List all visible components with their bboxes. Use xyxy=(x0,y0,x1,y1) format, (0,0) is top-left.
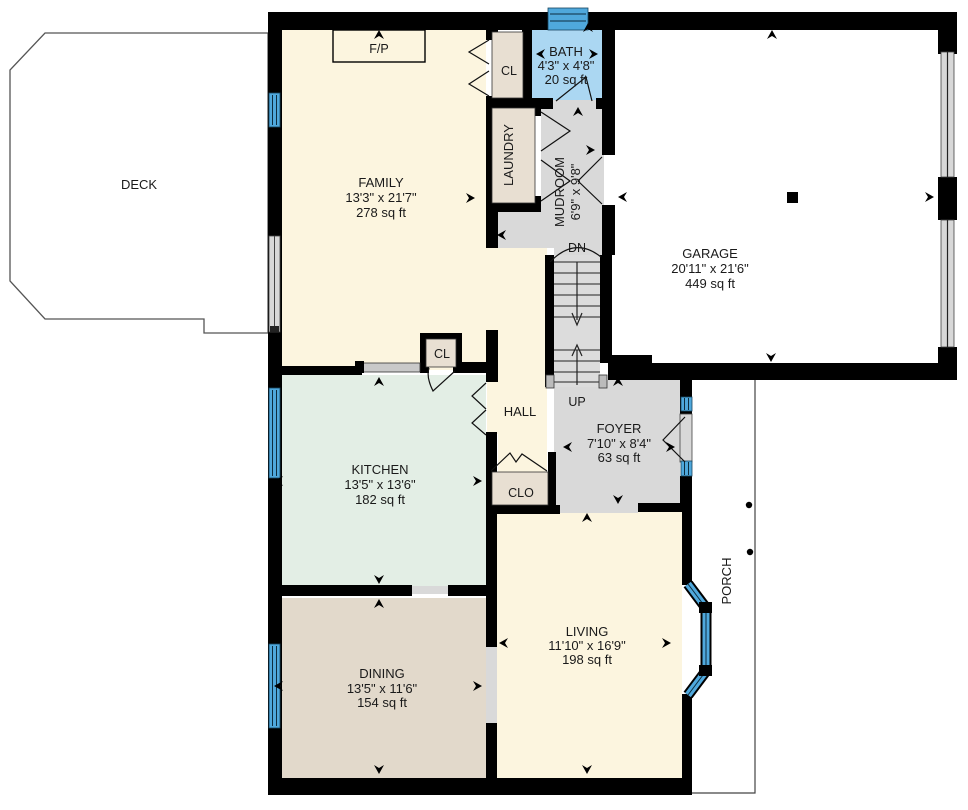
family-hall-opening xyxy=(486,248,498,330)
kitchen-window xyxy=(269,388,280,478)
floor-plan-svg: DECK F/P FAMILY 13'3" x 21'7" 278 sq ft … xyxy=(0,0,968,810)
stairs-up-label: UP xyxy=(568,395,585,409)
foyer-area: 63 sq ft xyxy=(598,450,641,465)
room-floors xyxy=(282,30,682,778)
family-sliding-door xyxy=(269,236,280,332)
bay-window xyxy=(682,576,712,703)
kitchen-hall-doorfloor xyxy=(487,382,498,434)
bath-label: BATH xyxy=(549,44,583,59)
dining-label: DINING xyxy=(359,666,405,681)
porch-label: PORCH xyxy=(719,558,734,605)
mudroom-label: MUDROOM xyxy=(552,157,567,227)
garage-post xyxy=(787,192,798,203)
porch-post xyxy=(746,502,752,508)
hall-closet-label: CLO xyxy=(508,486,534,500)
floor-plan: DECK F/P FAMILY 13'3" x 21'7" 278 sq ft … xyxy=(0,0,968,810)
garage-door-upper xyxy=(941,52,954,177)
bath-area: 20 sq ft xyxy=(545,72,588,87)
living-label: LIVING xyxy=(566,624,609,639)
family-dims: 13'3" x 21'7" xyxy=(345,190,417,205)
kitchen-closet-label: CL xyxy=(434,347,450,361)
kitchen-label: KITCHEN xyxy=(351,462,408,477)
family-label: FAMILY xyxy=(358,175,404,190)
foyer-label: FOYER xyxy=(597,421,642,436)
mudroom-dims: 6'9" x 9'8" xyxy=(568,163,583,220)
hall-label: HALL xyxy=(504,404,537,419)
fireplace-label: F/P xyxy=(369,42,388,56)
kitchen-area: 182 sq ft xyxy=(355,492,405,507)
kitchen-dims: 13'5" x 13'6" xyxy=(344,477,416,492)
staircase xyxy=(546,255,607,388)
foyer-dims: 7'10" x 8'4" xyxy=(587,436,651,451)
front-door-windows xyxy=(680,397,692,476)
family-area: 278 sq ft xyxy=(356,205,406,220)
garage-dims: 20'11" x 21'6" xyxy=(671,261,749,276)
bath-dims: 4'3" x 4'8" xyxy=(538,58,595,73)
living-area: 198 sq ft xyxy=(562,652,612,667)
dining-area: 154 sq ft xyxy=(357,695,407,710)
family-window xyxy=(269,93,280,127)
laundry-label: LAUNDRY xyxy=(501,124,516,186)
living-dims: 11'10" x 16'9" xyxy=(548,638,626,653)
stairs-down-label: DN xyxy=(568,241,586,255)
porch-post xyxy=(747,549,753,555)
garage-area: 449 sq ft xyxy=(685,276,735,291)
dining-dims: 13'5" x 11'6" xyxy=(347,681,418,696)
bath-window xyxy=(548,8,588,30)
family-closet-label: CL xyxy=(501,64,517,78)
garage-label: GARAGE xyxy=(682,246,738,261)
garage-door-lower xyxy=(941,220,954,347)
deck-label: DECK xyxy=(121,177,157,192)
